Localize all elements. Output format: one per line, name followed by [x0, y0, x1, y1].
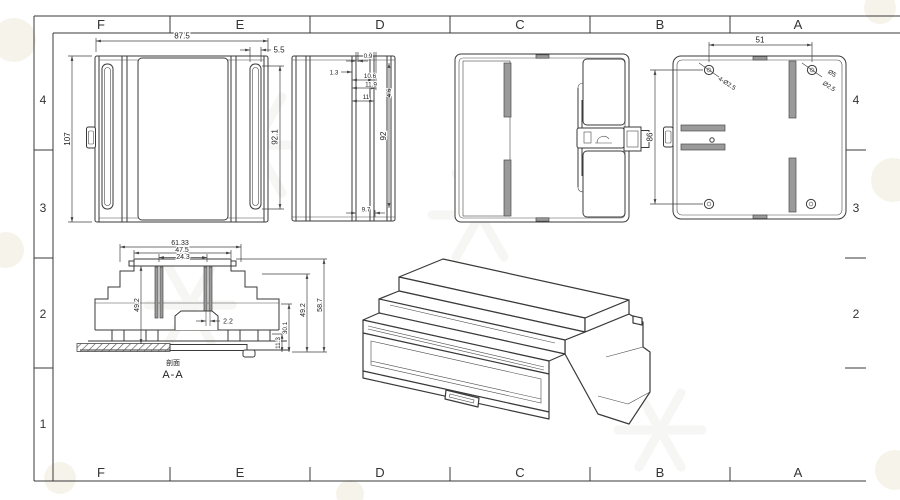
dim-side-2: 1.3: [330, 70, 339, 77]
dim-inner-width: 47.5: [175, 247, 189, 254]
dim-h1: 11.3: [275, 337, 282, 349]
dim-h3: 49.2: [300, 303, 307, 317]
din-clip-side: [87, 127, 96, 148]
grid-col-label: A: [794, 465, 803, 480]
dim-overall-width: 87.5: [174, 32, 190, 41]
isometric-view: [363, 259, 650, 424]
grid-row-label: 3: [853, 201, 860, 215]
grid-col-label: D: [375, 17, 384, 32]
bottom-notch: [536, 218, 549, 221]
dim-base-width: 9.7: [362, 207, 371, 214]
section-view: 61.33 47.5 24.3 49.2 2.2 11.3 30.1 49.2 …: [77, 240, 327, 381]
dim-side-5: 4.6: [386, 88, 393, 97]
vent-slot: [789, 158, 796, 212]
dim-slot-height: 92.1: [271, 129, 280, 145]
side-slot: [681, 125, 725, 131]
top-notch: [753, 57, 767, 61]
vent-slot: [789, 61, 796, 118]
drawing-sheet: F E D C B A F E D C B A 4 3 2 1 4 3 2 87…: [0, 0, 900, 500]
grid-col-label: F: [97, 17, 105, 32]
din-clip-side: [664, 127, 674, 147]
top-view: 4-Ø2.5 Ø5 Ø2.5 51 86: [646, 36, 847, 220]
grid-row-label: 3: [40, 201, 47, 215]
top-notch: [536, 55, 549, 58]
dim-h4: 58.7: [317, 298, 324, 312]
section-caption-zh: 剖面: [166, 358, 180, 367]
dim-side-6: 11: [363, 94, 370, 101]
section-caption: A-A: [162, 369, 183, 381]
dim-hole-span-vertical: 86: [646, 132, 655, 141]
dim-side-4: 11.9: [365, 82, 377, 89]
grid-row-label: 4: [40, 93, 47, 107]
dim-h2: 30.1: [282, 321, 289, 334]
dim-slot-gap: 2.2: [223, 319, 233, 326]
bottom-notch: [753, 215, 767, 219]
grid-col-label: B: [656, 465, 665, 480]
dim-overall-height: 107: [63, 132, 72, 146]
grid-col-label: A: [794, 17, 803, 32]
grid-row-label: 2: [853, 307, 860, 321]
grid-row-label: 2: [40, 307, 47, 321]
grid-col-label: E: [236, 465, 245, 480]
grid-row-label: 1: [40, 417, 47, 431]
grid-col-label: E: [236, 17, 245, 32]
dim-outer-width: 61.33: [171, 240, 189, 247]
din-rail-clip: [577, 127, 649, 151]
dim-slot-span: 24.3: [176, 254, 190, 261]
dim-panel-height: 92: [379, 131, 388, 140]
dim-slot-width: 5.5: [273, 46, 285, 55]
side-slot: [681, 144, 725, 150]
dim-hole-span: 51: [756, 36, 765, 45]
grid-col-label: B: [656, 17, 665, 32]
dim-side-1: 0.9: [364, 53, 373, 60]
grid-col-label: C: [515, 17, 524, 32]
front-view: 87.5 107 5.5 92.1: [63, 32, 285, 223]
dim-left-height: 49.2: [134, 298, 141, 312]
grid-row-label: 4: [853, 93, 860, 107]
grid-col-label: D: [375, 465, 384, 480]
bottom-view: [455, 54, 649, 222]
grid-col-label: F: [97, 465, 105, 480]
dim-side-3: 10.6: [364, 73, 377, 80]
side-view: 0.9 1.3 10.6 11.9 4.6 11 92 9.7: [292, 52, 395, 221]
grid-col-label: C: [515, 465, 524, 480]
din-rail-hatch: [77, 344, 170, 352]
drawing-canvas: F E D C B A F E D C B A 4 3 2 1 4 3 2 87…: [0, 0, 900, 500]
